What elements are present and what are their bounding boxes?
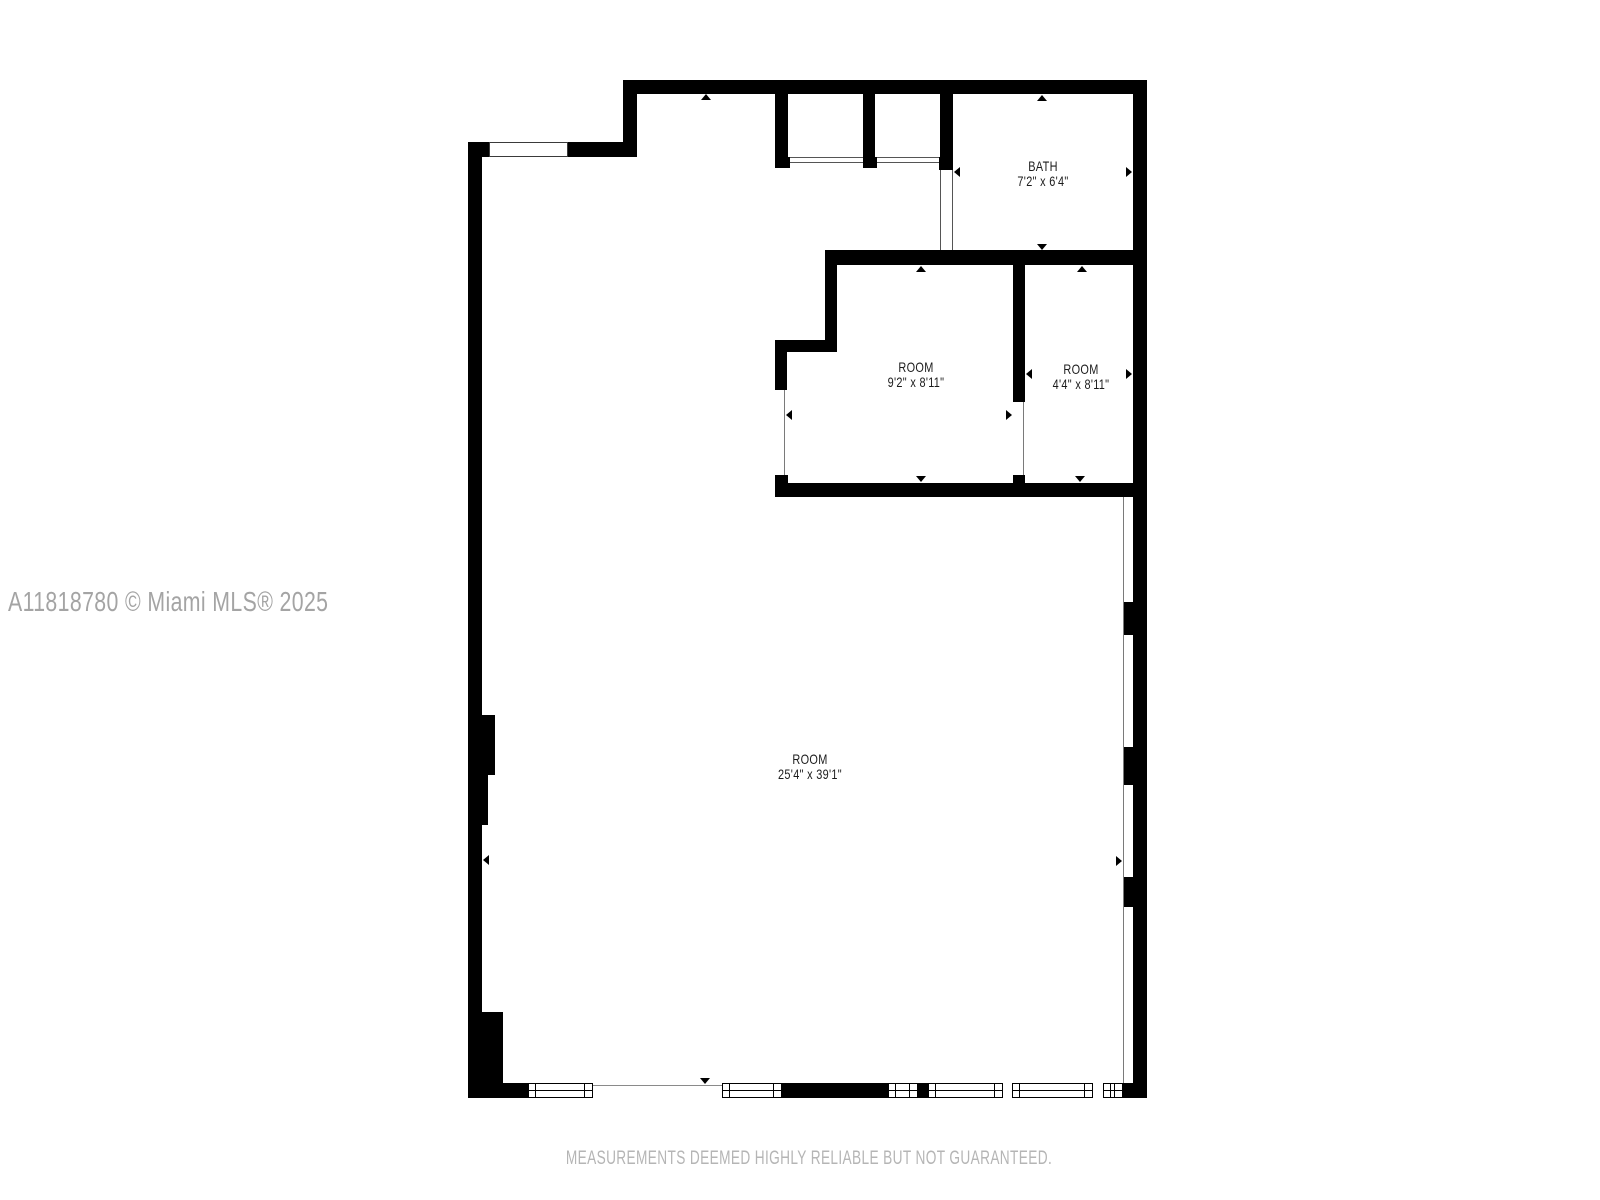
wall <box>482 775 488 825</box>
measure-arrow-right-icon <box>1006 410 1012 420</box>
measure-arrow-right-icon <box>1126 167 1132 177</box>
wall <box>468 142 482 1098</box>
window <box>722 1083 782 1098</box>
wall <box>775 94 788 158</box>
wall <box>775 483 1147 497</box>
wall <box>468 1012 503 1098</box>
wall <box>940 94 953 158</box>
room-dimensions: 25'4" x 39'1" <box>778 767 842 782</box>
measure-arrow-down-icon <box>916 476 926 482</box>
wall <box>1013 265 1025 402</box>
sliding-door-track <box>1123 497 1124 1083</box>
wall <box>1123 877 1133 907</box>
entry-opening <box>593 1085 722 1086</box>
measure-arrow-up-icon <box>1037 95 1047 101</box>
wall <box>825 252 837 352</box>
wall <box>939 157 953 170</box>
wall <box>1013 475 1025 497</box>
measure-arrow-up-icon <box>916 266 926 272</box>
bath-door-opening <box>940 170 953 250</box>
room-label-room-2: ROOM 4'4" x 8'11" <box>1053 362 1110 392</box>
room-label-bath: BATH 7'2" x 6'4" <box>1017 159 1068 189</box>
room-name: ROOM <box>888 360 945 375</box>
window <box>1012 1083 1093 1098</box>
room-dimensions: 7'2" x 6'4" <box>1017 174 1068 189</box>
wall <box>1133 80 1147 1098</box>
wall <box>782 1083 888 1098</box>
measure-arrow-up-icon <box>1077 266 1087 272</box>
measure-arrow-down-icon <box>1037 244 1047 250</box>
measure-arrow-right-icon <box>1116 856 1122 866</box>
measure-arrow-left-icon <box>483 855 489 865</box>
closet-opening <box>877 157 939 163</box>
room-name: ROOM <box>778 752 842 767</box>
room-name: ROOM <box>1053 362 1110 377</box>
wall <box>918 1083 928 1098</box>
measure-arrow-right-icon <box>1126 369 1132 379</box>
wall <box>1123 602 1133 635</box>
wall <box>503 1083 528 1098</box>
wall <box>863 94 875 158</box>
measurements-disclaimer: MEASUREMENTS DEEMED HIGHLY RELIABLE BUT … <box>566 1148 1052 1170</box>
room-name: BATH <box>1017 159 1068 174</box>
room-label-room-1: ROOM 9'2" x 8'11" <box>888 360 945 390</box>
wall <box>775 157 790 168</box>
measure-arrow-down-icon <box>1075 476 1085 482</box>
wall <box>825 250 1147 265</box>
measure-arrow-left-icon <box>954 167 960 177</box>
door-opening <box>784 390 785 475</box>
room-label-main-room: ROOM 25'4" x 39'1" <box>778 752 842 782</box>
window <box>928 1083 1003 1098</box>
window <box>489 142 568 157</box>
room-dimensions: 4'4" x 8'11" <box>1053 377 1110 392</box>
window <box>528 1083 593 1098</box>
room-dimensions: 9'2" x 8'11" <box>888 375 945 390</box>
wall <box>863 157 877 168</box>
closet-opening <box>790 157 863 163</box>
wall <box>1123 747 1133 785</box>
wall <box>468 142 489 157</box>
wall <box>775 340 787 390</box>
window <box>1103 1083 1123 1098</box>
measure-arrow-down-icon <box>700 1078 710 1084</box>
wall <box>482 715 495 775</box>
mls-watermark: A11818780 © Miami MLS® 2025 <box>8 586 328 618</box>
wall <box>1123 1083 1147 1098</box>
door-opening <box>1023 402 1024 475</box>
measure-arrow-left-icon <box>786 410 792 420</box>
wall <box>623 80 1147 94</box>
measure-arrow-up-icon <box>701 94 711 100</box>
window <box>888 1083 918 1098</box>
measure-arrow-left-icon <box>1026 369 1032 379</box>
